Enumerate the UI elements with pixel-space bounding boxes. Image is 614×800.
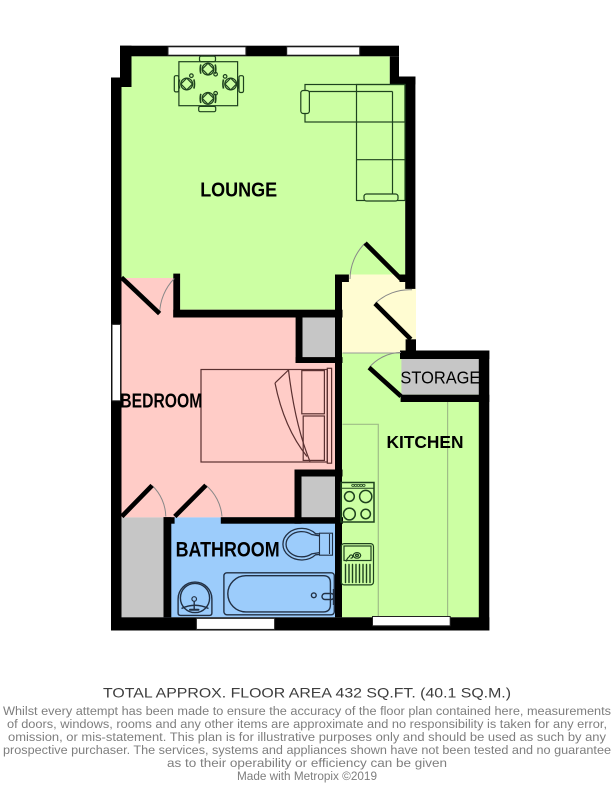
svg-text:STORAGE: STORAGE bbox=[400, 368, 480, 388]
svg-text:as to their operability or eff: as to their operability or efficiency ca… bbox=[167, 756, 447, 770]
svg-text:omission, or mis-statement. Th: omission, or mis-statement. This plan is… bbox=[8, 730, 607, 744]
svg-text:prospective purchaser. The ser: prospective purchaser. The services, sys… bbox=[3, 743, 611, 757]
svg-text:Made with Metropix ©2019: Made with Metropix ©2019 bbox=[237, 769, 377, 783]
svg-text:KITCHEN: KITCHEN bbox=[387, 432, 464, 452]
svg-text:of doors, windows, rooms and a: of doors, windows, rooms and any other i… bbox=[7, 717, 607, 731]
svg-text:TOTAL APPROX. FLOOR AREA 432 S: TOTAL APPROX. FLOOR AREA 432 SQ.FT. (40.… bbox=[103, 686, 511, 701]
svg-text:BATHROOM: BATHROOM bbox=[176, 538, 280, 561]
svg-text:BEDROOM: BEDROOM bbox=[120, 391, 202, 413]
svg-text:Whilst every attempt has been: Whilst every attempt has been made to en… bbox=[3, 704, 611, 718]
svg-text:LOUNGE: LOUNGE bbox=[200, 180, 277, 202]
